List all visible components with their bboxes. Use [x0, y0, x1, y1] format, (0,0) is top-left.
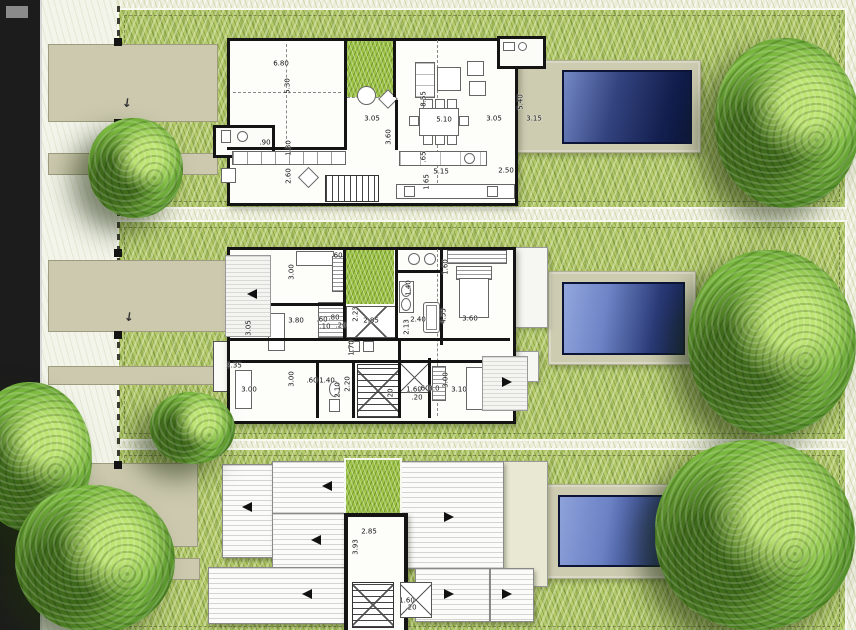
chair [447, 135, 457, 145]
dimension-label: 3.05 [486, 116, 502, 123]
dimension-label: 1.40 [406, 280, 413, 296]
entry-arrow-icon: ↓ [123, 309, 135, 324]
dimension-label: 3.60 [462, 316, 478, 323]
left-roof-slope-arrow-icon [302, 589, 312, 599]
dimension-label: 3.00 [443, 372, 450, 388]
dimension-label: 8.55 [421, 91, 428, 107]
tree [150, 392, 235, 464]
tree [688, 250, 856, 435]
hall-seat [221, 168, 236, 183]
dimension-label: .20 [388, 388, 395, 399]
roof-panel [272, 461, 346, 515]
tree [88, 118, 183, 218]
dimension-label: 6.80 [273, 61, 289, 68]
fence-post [114, 249, 122, 257]
dimension-label: 1.40 [319, 378, 335, 385]
armchair [467, 61, 484, 76]
pool-2 [562, 282, 685, 355]
wall-uf-v5 [352, 362, 355, 418]
dimension-label: 3.10 [451, 387, 467, 394]
dimension-label: 1.70 [349, 340, 356, 356]
dimension-label: 3.80 [288, 318, 304, 325]
dimension-label: 3.00 [241, 387, 257, 394]
dimension-label: 1.60 [443, 259, 450, 275]
wall-uf-v4 [316, 362, 319, 418]
chair [447, 99, 457, 109]
courtyard-upper-void [346, 250, 394, 304]
appliance [487, 186, 498, 197]
pool-bath-sink [518, 42, 527, 51]
master-bed [459, 278, 489, 318]
wall-uf-v2 [395, 247, 398, 340]
dimension-label: .90 [259, 140, 270, 147]
wall-hall-living [395, 100, 398, 150]
dimension-label: 2.13 [404, 319, 411, 335]
dimension-label: 3.15 [526, 116, 542, 123]
right-roof-slope-arrow-icon [444, 512, 454, 522]
chair [435, 99, 445, 109]
tree [15, 485, 175, 630]
dimension-label: .60 [306, 378, 317, 385]
fence-post [114, 331, 122, 339]
chair [435, 135, 445, 145]
footpath-plot-2 [48, 366, 216, 385]
dimension-label: 1.30 [286, 140, 293, 156]
entry-arrow-icon: ↓ [121, 95, 133, 110]
right-roof-slope-arrow-icon [502, 589, 512, 599]
site-plan-canvas: 6.805.30.901.302.603.053.608.555.10.655.… [0, 0, 856, 630]
staircase-ground [325, 175, 379, 202]
driveway-plot-2 [48, 260, 226, 332]
pool-bath-fixture [503, 42, 515, 51]
right-roof-slope-arrow-icon [502, 377, 512, 387]
toilet [329, 399, 340, 412]
roof-panel [208, 567, 345, 624]
master-wardrobe [447, 250, 507, 264]
chair [409, 116, 419, 126]
wall-hall-bottom [227, 360, 510, 363]
washbasin [237, 131, 248, 142]
dimension-label: .20 [405, 605, 416, 612]
driveway-plot-1 [48, 44, 218, 122]
dimension-label: 3.00 [289, 264, 296, 280]
wall-uf-v6 [398, 340, 401, 418]
dimension-label: 5.10 [436, 117, 452, 124]
pool-bath-annex [497, 36, 546, 69]
dimension-label: 2.23 [353, 306, 360, 322]
wall-garage-right [344, 38, 347, 150]
dimension-label: 5.15 [433, 169, 449, 176]
dimension-label: 2.85 [361, 529, 377, 536]
left-roof-slope-arrow-icon [322, 481, 332, 491]
wall-laundry [398, 270, 443, 273]
staircase-roof [352, 582, 394, 628]
dimension-label: 2.85 [363, 318, 379, 325]
coffee-table [437, 67, 461, 91]
left-roof-slope-arrow-icon [247, 289, 257, 299]
tree [715, 38, 856, 208]
dimension-label: 3.93 [353, 539, 360, 555]
wall-hall-top [227, 338, 510, 341]
bed [296, 251, 334, 266]
dimension-label: 3.0 [428, 386, 439, 393]
pool-1 [562, 70, 692, 144]
left-roof-slope-arrow-icon [311, 535, 321, 545]
dimension-label: 2.60 [286, 168, 293, 184]
courtyard-roof-void [344, 458, 402, 517]
dimension-label: .20 [335, 323, 346, 330]
dimension-label: 3.05 [364, 116, 380, 123]
dryer [424, 253, 436, 265]
appliance [404, 186, 415, 197]
roof-panel [490, 568, 534, 622]
dimension-label: 2.40 [410, 317, 426, 324]
dimension-label: 4.55 [441, 308, 448, 324]
dimension-label: .20 [411, 395, 422, 402]
hall-skylight [363, 341, 374, 352]
dimension-label: 2.50 [498, 168, 514, 175]
wall-courtyard-right [393, 38, 396, 97]
kitchen-sink [464, 153, 475, 164]
street-marking [6, 6, 28, 18]
dimension-label: .80 [328, 315, 339, 322]
dimension-label: 5.30 [285, 78, 292, 94]
dimension-label: 2.10 [335, 382, 342, 398]
dimension-label: 1.65 [424, 174, 431, 190]
left-roof-slope-arrow-icon [242, 502, 252, 512]
dimension-label: 2.35 [226, 363, 242, 370]
dimension-label: 3.60 [386, 129, 393, 145]
dimension-label: 3.05 [246, 320, 253, 336]
dimension-label: 5.40 [518, 94, 525, 110]
roof-panel [272, 513, 345, 569]
toilet [221, 130, 231, 143]
chair [423, 135, 433, 145]
fence-post [114, 461, 122, 469]
dimension-label: .60 [331, 253, 342, 260]
bath-sink [401, 298, 411, 311]
patio-round-table [357, 86, 376, 105]
dimension-label: 2.20 [345, 376, 352, 392]
tree [655, 440, 855, 630]
chair [459, 116, 469, 126]
dimension-label: 3.00 [289, 371, 296, 387]
dimension-label: .65 [421, 151, 428, 162]
washer [408, 253, 420, 265]
right-roof-slope-arrow-icon [444, 589, 454, 599]
fence-post [114, 38, 122, 46]
armchair [469, 81, 486, 96]
dimension-label: .10 [319, 324, 330, 331]
